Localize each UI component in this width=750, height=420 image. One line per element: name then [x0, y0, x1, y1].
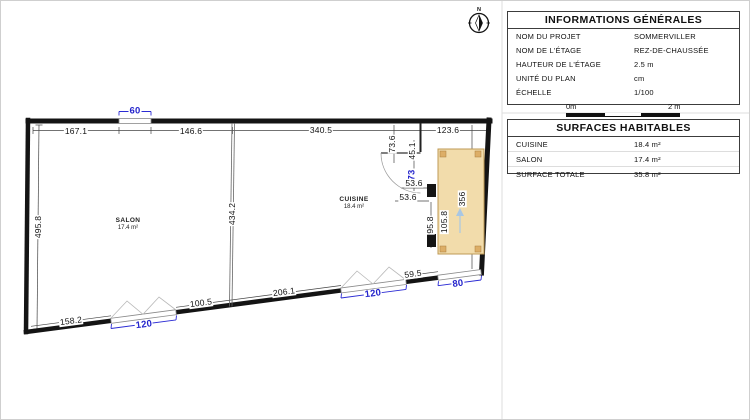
info-value: 2.5 m — [634, 60, 739, 69]
surface-label: CUISINE — [516, 140, 634, 149]
info-label: HAUTEUR DE L'ÉTAGE — [516, 60, 634, 69]
room-label-salon: SALON 17.4 m² — [116, 217, 141, 233]
surface-label: SALON — [516, 155, 634, 164]
dim-label-partition: 434.2 — [228, 202, 237, 226]
kitchen-counter — [427, 149, 484, 254]
info-label: UNITÉ DU PLAN — [516, 74, 634, 83]
panel-surfaces-habitables: SURFACES HABITABLES CUISINE 18.4 m² SALO… — [507, 119, 740, 174]
info-value: REZ-DE-CHAUSSÉE — [634, 46, 739, 55]
floorplan-viewer: N SALON 17.4 m² CUISINE 18.4 m² 167.1 14… — [0, 0, 750, 420]
dim-label-top-4: 123.6 — [436, 126, 460, 135]
surface-row-salon: SALON 17.4 m² — [508, 152, 739, 167]
dim-label-counter-depth: 95.8 — [426, 215, 435, 234]
dim-label-window-bottom-1: 120 — [134, 319, 154, 331]
dim-label-counter-1: 53.6 — [404, 179, 423, 188]
dim-label-window-bottom-3: 80 — [451, 278, 465, 289]
info-label: ÉCHELLE — [516, 88, 634, 97]
dim-label-right-inner: 356 — [458, 191, 467, 208]
info-row-height: HAUTEUR DE L'ÉTAGE 2.5 m — [508, 57, 739, 71]
room-area: 17.4 m² — [116, 225, 141, 233]
wall-stub-upper — [427, 184, 436, 197]
dim-label-window-bottom-2: 120 — [363, 288, 383, 300]
room-area: 18.4 m² — [339, 204, 368, 212]
surface-label: SURFACE TOTALE — [516, 170, 634, 179]
wall-stub-lower — [427, 234, 436, 247]
info-row-floor: NOM DE L'ÉTAGE REZ-DE-CHAUSSÉE — [508, 43, 739, 57]
info-row-unit: UNITÉ DU PLAN cm — [508, 72, 739, 86]
info-row-project: NOM DU PROJET SOMMERVILLER — [508, 29, 739, 43]
casement-symbols — [111, 267, 406, 318]
dim-label-top-1: 167.1 — [64, 127, 88, 136]
compass-north-label: N — [477, 7, 481, 13]
dimension-lines — [31, 125, 489, 329]
panel-informations-generales: INFORMATIONS GÉNÉRALES NOM DU PROJET SOM… — [507, 11, 740, 105]
room-label-cuisine: CUISINE 18.4 m² — [339, 196, 368, 212]
dim-label-bottom-4: 59.5 — [403, 269, 423, 280]
north-compass-icon: N — [468, 7, 490, 33]
surface-row-cuisine: CUISINE 18.4 m² — [508, 137, 739, 152]
window-top — [119, 119, 151, 124]
dim-label-top-3: 340.5 — [309, 126, 333, 135]
scale-bar-ruler — [566, 111, 680, 117]
panel-title: SURFACES HABITABLES — [508, 120, 739, 137]
scale-bar-start-label: 0m — [566, 102, 576, 111]
room-name: CUISINE — [339, 196, 368, 204]
dim-label-door-offset: 73.6 — [388, 134, 397, 153]
info-value: SOMMERVILLER — [634, 32, 739, 41]
dim-label-door-side: 45.1 — [408, 141, 417, 160]
scale-bar: 0m 2 m — [508, 102, 739, 120]
dim-label-left: 495.8 — [34, 215, 43, 239]
panel-title: INFORMATIONS GÉNÉRALES — [508, 12, 739, 29]
surface-row-total: SURFACE TOTALE 35.8 m² — [508, 167, 739, 181]
surface-value: 17.4 m² — [634, 155, 739, 164]
room-name: SALON — [116, 217, 141, 225]
dim-label-counter-length: 105.8 — [440, 210, 449, 234]
dim-label-top-2: 146.6 — [179, 127, 203, 136]
scale-bar-end-label: 2 m — [668, 102, 681, 111]
surface-value: 35.8 m² — [634, 170, 739, 179]
info-row-scale: ÉCHELLE 1/100 — [508, 86, 739, 100]
info-label: NOM DU PROJET — [516, 32, 634, 41]
surface-value: 18.4 m² — [634, 140, 739, 149]
dim-label-window-top: 60 — [129, 106, 142, 116]
info-label: NOM DE L'ÉTAGE — [516, 46, 634, 55]
info-value: cm — [634, 74, 739, 83]
info-value: 1/100 — [634, 88, 739, 97]
dim-label-counter-2: 53.6 — [398, 193, 417, 202]
